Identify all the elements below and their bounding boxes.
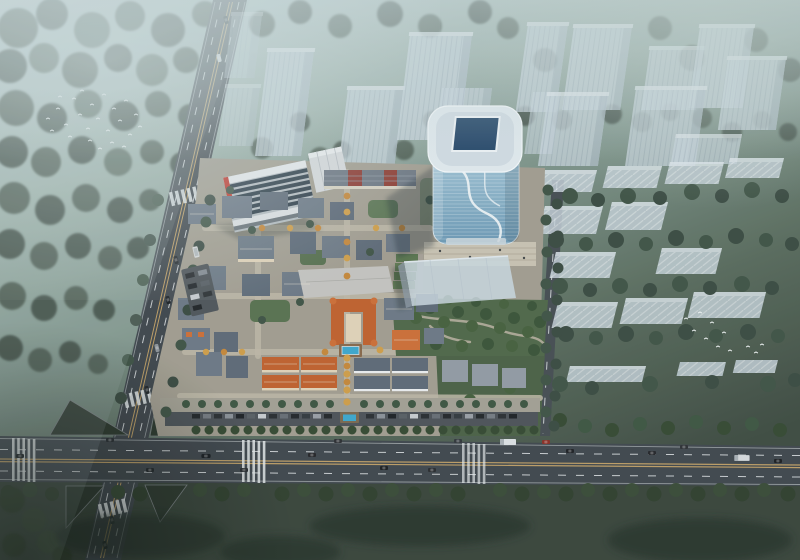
scene-canvas bbox=[0, 0, 800, 560]
mist-overlays bbox=[0, 0, 800, 560]
aerial-rendering bbox=[0, 0, 800, 560]
